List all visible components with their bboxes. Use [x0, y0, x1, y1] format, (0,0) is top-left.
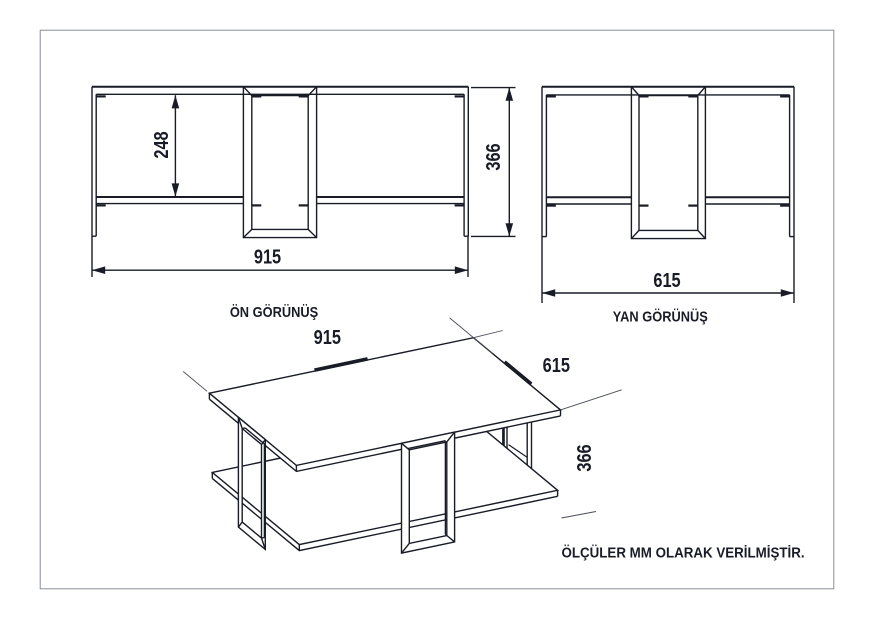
svg-text:YAN GÖRÜNÜŞ: YAN GÖRÜNÜŞ [613, 309, 708, 325]
svg-text:915: 915 [254, 245, 281, 268]
svg-text:ÖLÇÜLER MM OLARAK VERİLMİŞTİR.: ÖLÇÜLER MM OLARAK VERİLMİŞTİR. [561, 544, 804, 562]
svg-text:ÖN GÖRÜNÜŞ: ÖN GÖRÜNÜŞ [230, 304, 318, 320]
svg-text:615: 615 [543, 353, 570, 376]
svg-text:915: 915 [314, 325, 341, 348]
svg-text:366: 366 [572, 444, 595, 471]
svg-text:366: 366 [481, 143, 504, 170]
svg-text:615: 615 [653, 268, 680, 291]
svg-text:248: 248 [149, 131, 172, 158]
